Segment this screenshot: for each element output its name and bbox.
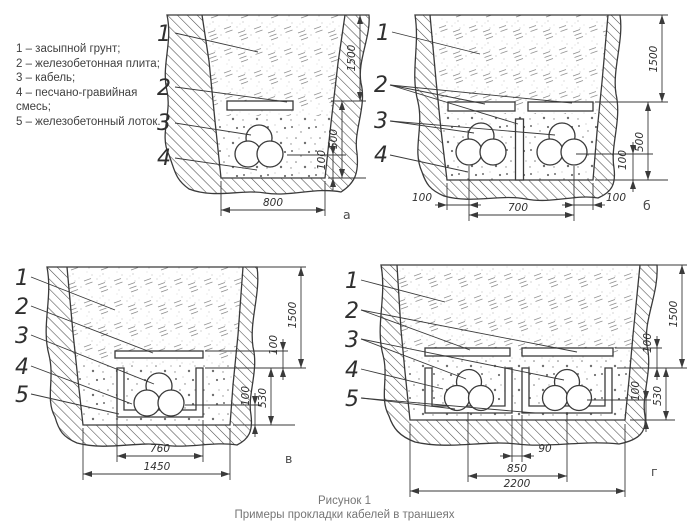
dim-bedding: 100 [617, 150, 629, 170]
dim-depth: 1500 [287, 301, 299, 328]
dim-depth: 1500 [668, 300, 680, 327]
leader-3: 3 [157, 111, 171, 136]
dim-above-tray: 100 [642, 333, 654, 353]
dim-below-slab: 500 [634, 132, 646, 152]
dim-tray-spacing: 850 [507, 463, 527, 475]
leader-4: 4 [157, 146, 171, 171]
legend-item-5: 5 – железобетонный лоток. [16, 115, 164, 130]
concrete-slab [115, 351, 203, 358]
figure-caption: Рисунок 1 Примеры прокладки кабелей в тр… [0, 495, 689, 522]
drawing-sheet: 1 – засыпной грунт; 2 – железобетонная п… [0, 0, 689, 531]
leader-3: 3 [15, 324, 29, 349]
dim-bedding: 100 [240, 386, 252, 406]
cable [456, 139, 482, 165]
trench-b [415, 15, 621, 200]
leader-4: 4 [15, 355, 29, 380]
dim-tray-zone: 530 [652, 386, 664, 406]
legend-item-1: 1 – засыпной грунт; [16, 42, 164, 57]
dim-depth: 1500 [648, 45, 660, 72]
trench-v [46, 267, 258, 446]
leader-1: 1 [376, 21, 390, 46]
concrete-slab [227, 101, 293, 110]
leader-2: 2 [15, 295, 29, 320]
dim-bottom-width: 2200 [504, 478, 531, 490]
trench-g [380, 265, 657, 445]
backfill-soil-area [390, 265, 648, 360]
dim-bottom-width: 800 [263, 197, 283, 209]
cable [134, 390, 160, 416]
figure-g-trench-section: 1500 100 530 100 90 850 2200 [335, 250, 689, 495]
leader-5: 5 [345, 387, 359, 412]
cable [469, 386, 494, 411]
cable [543, 386, 568, 411]
dim-bottom-width: 1450 [144, 461, 171, 473]
dim-below-slab: 500 [328, 129, 340, 149]
dim-above-tray: 100 [268, 335, 280, 355]
leader-2: 2 [345, 299, 359, 324]
leader-5: 5 [15, 383, 29, 408]
figure-v-label: в [285, 451, 292, 466]
dim-between-cables: 700 [508, 202, 528, 214]
dim-edge-left: 100 [412, 192, 432, 204]
leader-2: 2 [157, 76, 171, 101]
cable [537, 139, 563, 165]
leader-4: 4 [374, 143, 388, 168]
dim-depth: 1500 [346, 44, 358, 71]
leader-2: 2 [374, 73, 388, 98]
dim-tray-width: 760 [150, 443, 170, 455]
leader-1: 1 [157, 22, 171, 47]
legend-item-2: 2 – железобетонная плита; [16, 57, 164, 72]
leader-1: 1 [345, 269, 359, 294]
dim-tray-zone: 530 [257, 388, 269, 408]
figure-g-label: г [651, 464, 658, 479]
concrete-divider-slab [516, 119, 524, 180]
dim-bedding: 100 [630, 381, 642, 401]
figure-a-trench-section: 1500 500 100 800 1 2 3 4 а [145, 3, 380, 233]
caption-line-1: Рисунок 1 [0, 495, 689, 509]
concrete-slab-right [522, 348, 613, 356]
dim-tray-gap: 90 [538, 443, 552, 455]
legend: 1 – засыпной грунт; 2 – железобетонная п… [16, 42, 164, 129]
concrete-slab-right [528, 102, 593, 111]
figure-b-label: б [643, 198, 651, 213]
legend-item-3: 3 – кабель; [16, 71, 164, 86]
caption-line-2: Примеры прокладки кабелей в траншеях [0, 509, 689, 523]
leader-3: 3 [345, 328, 359, 353]
leader-1: 1 [15, 266, 29, 291]
legend-item-4: 4 – песчано-гравийная смесь; [16, 86, 164, 115]
figure-b-trench-section: 1500 500 100 100 700 100 1 2 [360, 2, 689, 237]
leader-3: 3 [374, 109, 388, 134]
cable [480, 139, 506, 165]
figure-v-trench-section: 1500 100 530 100 760 1450 1 2 3 [5, 255, 335, 495]
cable [257, 141, 283, 167]
backfill-soil-area [422, 15, 617, 114]
trench-a [165, 15, 369, 194]
figure-a-label: а [343, 207, 351, 222]
cable [567, 386, 592, 411]
dim-bedding: 100 [316, 150, 328, 170]
cable [561, 139, 587, 165]
leader-4: 4 [345, 358, 359, 383]
backfill-soil-area [60, 267, 250, 365]
dim-edge-right: 100 [606, 192, 626, 204]
cable [158, 390, 184, 416]
